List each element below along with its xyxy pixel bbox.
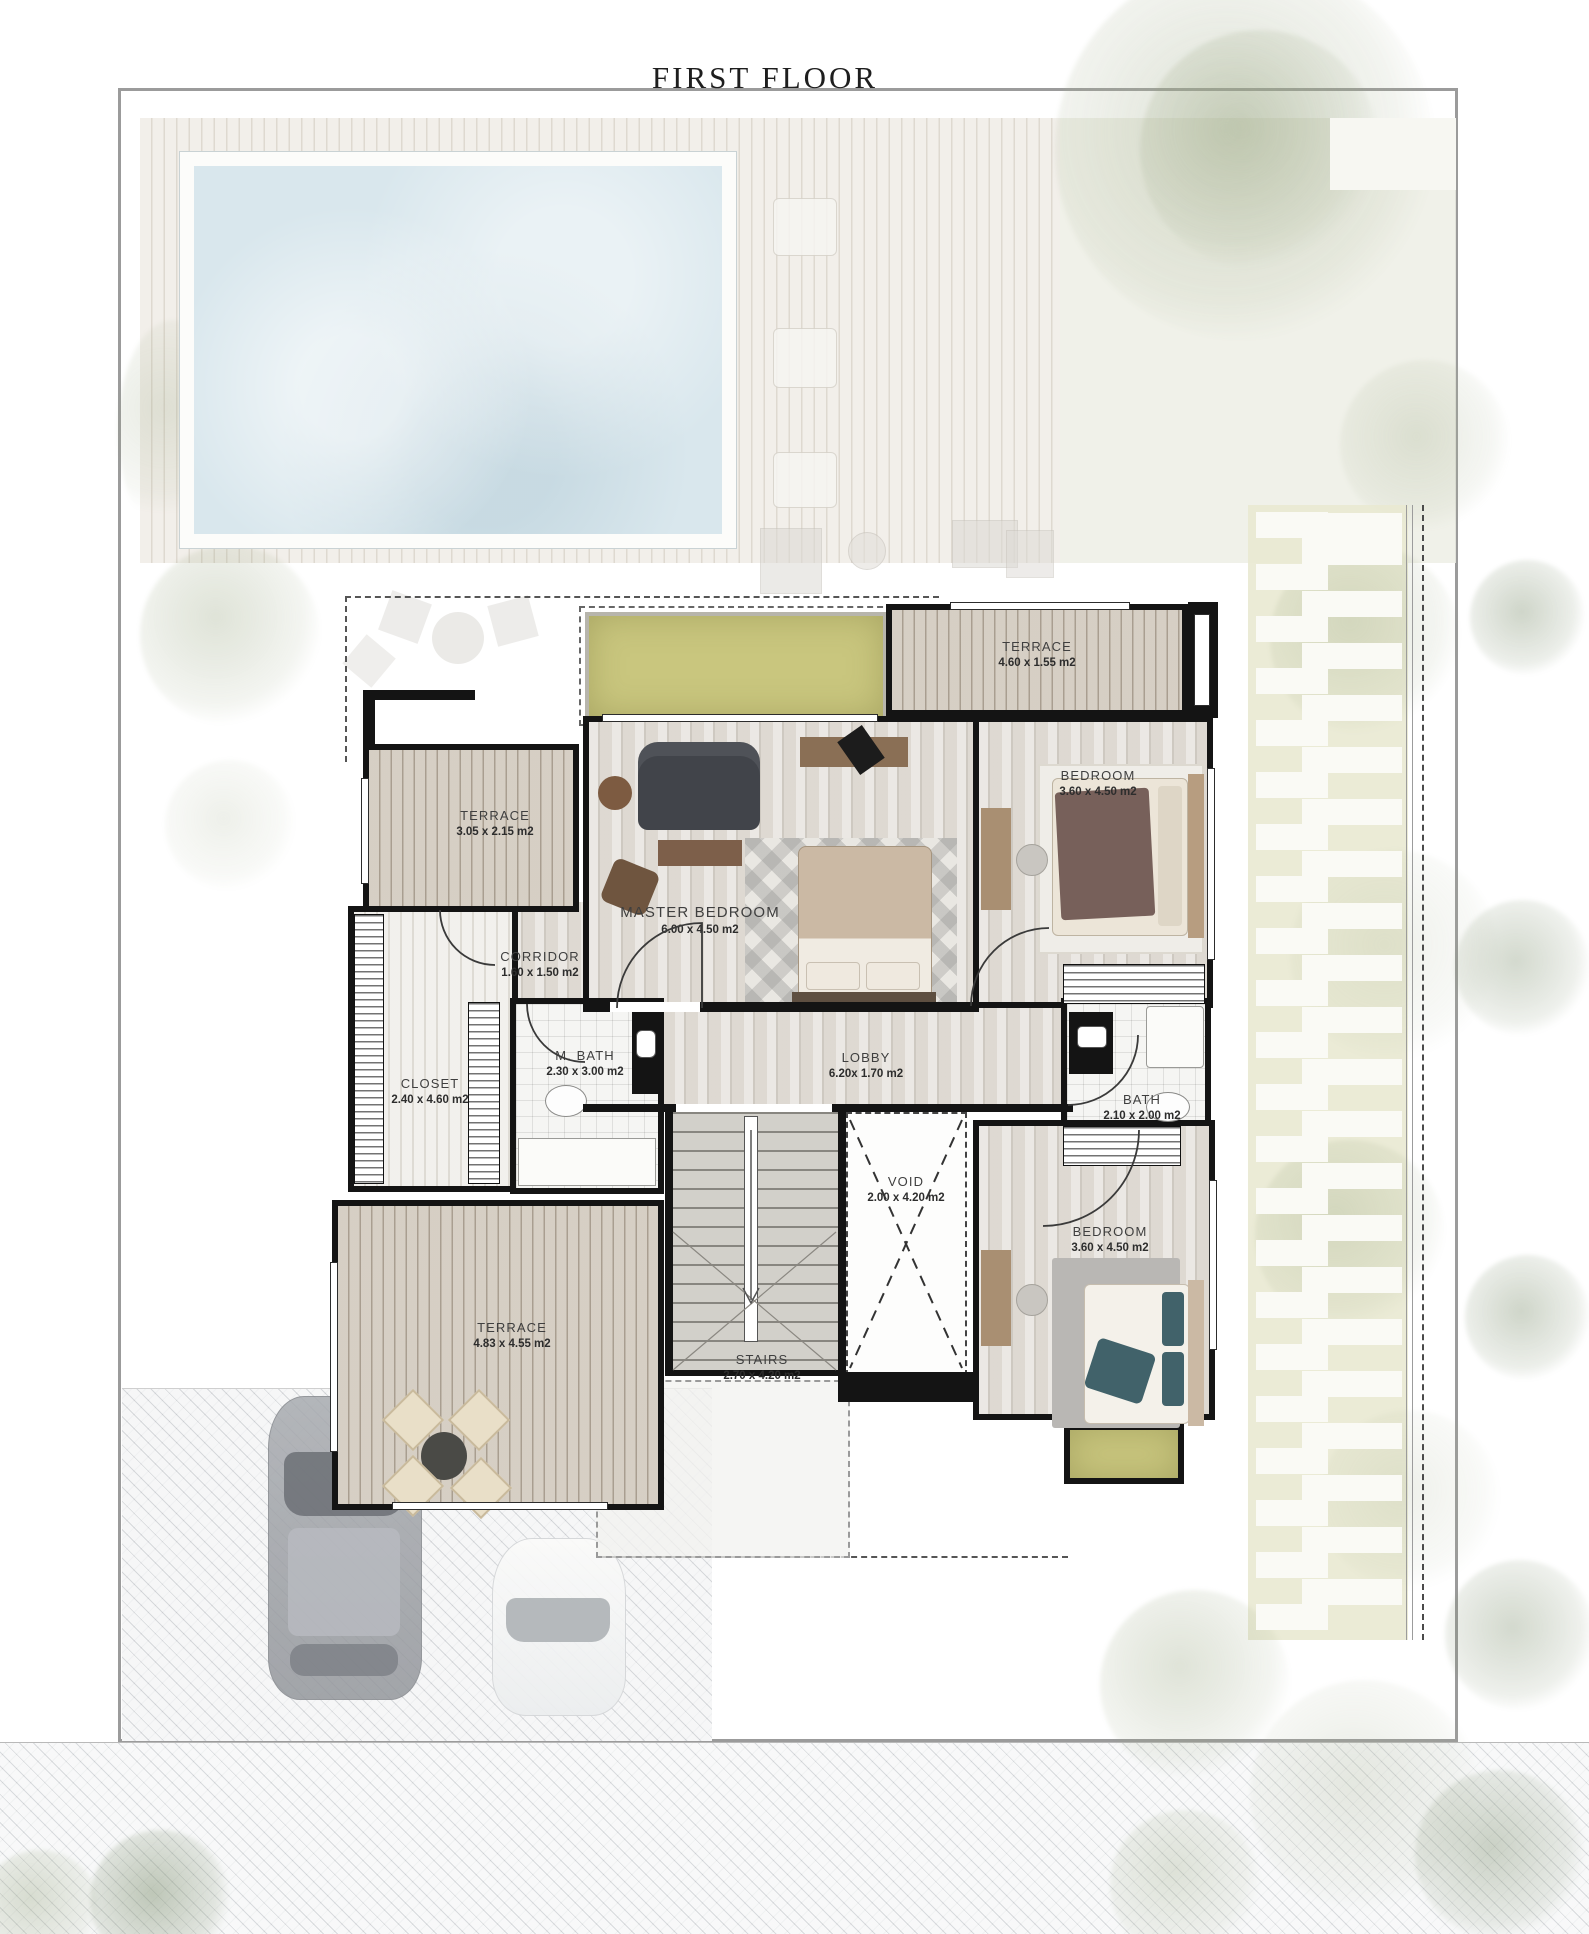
tree	[1455, 900, 1589, 1035]
room-name: VOID	[867, 1174, 944, 1191]
window	[1194, 614, 1210, 706]
window	[330, 1262, 338, 1452]
room-dims: 3.60 x 4.50 m2	[1059, 785, 1136, 800]
setback-line	[345, 596, 347, 762]
tree	[1470, 560, 1585, 675]
room-name: CLOSET	[391, 1076, 468, 1093]
label-lobby: LOBBY 6.20x 1.70 m2	[829, 1050, 903, 1082]
side-table	[598, 776, 632, 810]
tree	[165, 760, 295, 890]
headboard	[1188, 1280, 1204, 1426]
window	[1209, 1180, 1217, 1350]
room-dims: 2.30 x 3.00 m2	[546, 1065, 623, 1080]
pillow	[1162, 1292, 1184, 1346]
label-master-bedroom: MASTER BEDROOM 6.00 x 4.50 m2	[620, 903, 780, 937]
headboard	[1188, 774, 1204, 938]
room-dims: 3.60 x 4.50 m2	[1071, 1241, 1148, 1256]
room-name: BATH	[1103, 1092, 1180, 1109]
sun-lounger	[773, 452, 837, 508]
desk	[981, 1250, 1011, 1346]
pillow	[1162, 1352, 1184, 1406]
sun-lounger	[773, 198, 837, 256]
wall	[838, 1112, 846, 1376]
label-terrace-top-right: TERRACE 4.60 x 1.55 m2	[998, 639, 1075, 671]
wall	[838, 1372, 973, 1402]
room-dims: 2.00 x 4.20 m2	[867, 1191, 944, 1206]
label-master-bath: M. BATH 2.30 x 3.00 m2	[546, 1048, 623, 1080]
door-opening	[610, 1002, 700, 1012]
car-grey-roof	[288, 1528, 400, 1636]
coffee-bench	[658, 840, 742, 866]
window	[361, 778, 369, 884]
property-line-dashed	[1422, 505, 1424, 1640]
wardrobe	[354, 914, 384, 1184]
shower	[1146, 1006, 1204, 1068]
wardrobe	[1063, 964, 1205, 1004]
wall	[363, 690, 475, 700]
room-dims: 2.10 x 2.00 m2	[1103, 1109, 1180, 1124]
planter	[1064, 1424, 1184, 1484]
shower	[518, 1138, 656, 1186]
stairs-opening	[676, 1104, 832, 1112]
label-stairs: STAIRS 2.70 x 4.20 m2	[723, 1352, 800, 1384]
room-dims: 3.05 x 2.15 m2	[456, 825, 533, 840]
car-white-windshield	[506, 1598, 610, 1642]
stairs-rail	[744, 1116, 758, 1342]
toilet	[545, 1085, 587, 1117]
window	[602, 714, 878, 722]
room-dims: 2.40 x 4.60 m2	[391, 1093, 468, 1108]
room-name: M. BATH	[546, 1048, 623, 1065]
tree	[1415, 1770, 1585, 1934]
outdoor-table	[432, 612, 484, 664]
label-terrace-left: TERRACE 3.05 x 2.15 m2	[456, 808, 533, 840]
pillow	[866, 962, 920, 990]
room-dims: 6.20x 1.70 m2	[829, 1067, 903, 1082]
setback-line	[345, 596, 939, 598]
room-name: MASTER BEDROOM	[620, 903, 780, 923]
green-roof	[585, 612, 887, 720]
desk	[981, 808, 1011, 910]
car-grey-rear-window	[290, 1644, 398, 1676]
room-name: BEDROOM	[1071, 1224, 1148, 1241]
sink	[1077, 1026, 1107, 1048]
boundary-wall	[1406, 505, 1413, 1640]
label-void: VOID 2.00 x 4.20 m2	[867, 1174, 944, 1206]
floor-plan-canvas: FIRST FLOOR	[0, 0, 1589, 1934]
pool	[180, 152, 736, 548]
label-bath: BATH 2.10 x 2.00 m2	[1103, 1092, 1180, 1124]
window	[392, 1502, 608, 1510]
room-dims: 6.00 x 4.50 m2	[620, 922, 780, 937]
room-terrace-bottom-left	[332, 1200, 664, 1510]
room-name: TERRACE	[998, 639, 1075, 656]
room-name: TERRACE	[473, 1320, 550, 1337]
pillow	[806, 962, 860, 990]
room-name: LOBBY	[829, 1050, 903, 1067]
desk-chair	[1016, 844, 1048, 876]
tree	[1445, 1560, 1589, 1710]
tree	[1465, 1255, 1589, 1380]
room-dims: 2.70 x 4.20 m2	[723, 1369, 800, 1384]
tree	[140, 545, 320, 725]
label-bedroom-bottom-right: BEDROOM 3.60 x 4.50 m2	[1071, 1224, 1148, 1256]
room-name: BEDROOM	[1059, 768, 1136, 785]
room-dims: 1.60 x 1.50 m2	[500, 966, 580, 981]
room-name: STAIRS	[723, 1352, 800, 1369]
stepping-stones	[1302, 512, 1402, 1630]
sofa	[638, 742, 760, 830]
sink	[636, 1030, 656, 1058]
label-terrace-bottom-left: TERRACE 4.83 x 4.55 m2	[473, 1320, 550, 1352]
window	[950, 602, 1130, 610]
label-bedroom-top-right: BEDROOM 3.60 x 4.50 m2	[1059, 768, 1136, 800]
room-void	[846, 1112, 967, 1376]
desk-chair	[1016, 1284, 1048, 1316]
outdoor-chair	[1006, 530, 1054, 578]
window	[1207, 768, 1215, 960]
wardrobe	[468, 1002, 500, 1184]
outdoor-sofa	[760, 528, 822, 594]
room-dims: 4.60 x 1.55 m2	[998, 656, 1075, 671]
blanket	[1055, 788, 1156, 921]
label-corridor: CORRIDOR 1.60 x 1.50 m2	[500, 949, 580, 981]
page-title: FIRST FLOOR	[652, 60, 878, 96]
wardrobe	[1063, 1126, 1181, 1166]
room-dims: 4.83 x 4.55 m2	[473, 1337, 550, 1352]
pillow	[1158, 786, 1182, 926]
label-closet: CLOSET 2.40 x 4.60 m2	[391, 1076, 468, 1108]
outdoor-table	[848, 532, 886, 570]
garden-path	[1330, 118, 1456, 190]
sun-lounger	[773, 328, 837, 388]
room-name: TERRACE	[456, 808, 533, 825]
room-name: CORRIDOR	[500, 949, 580, 966]
